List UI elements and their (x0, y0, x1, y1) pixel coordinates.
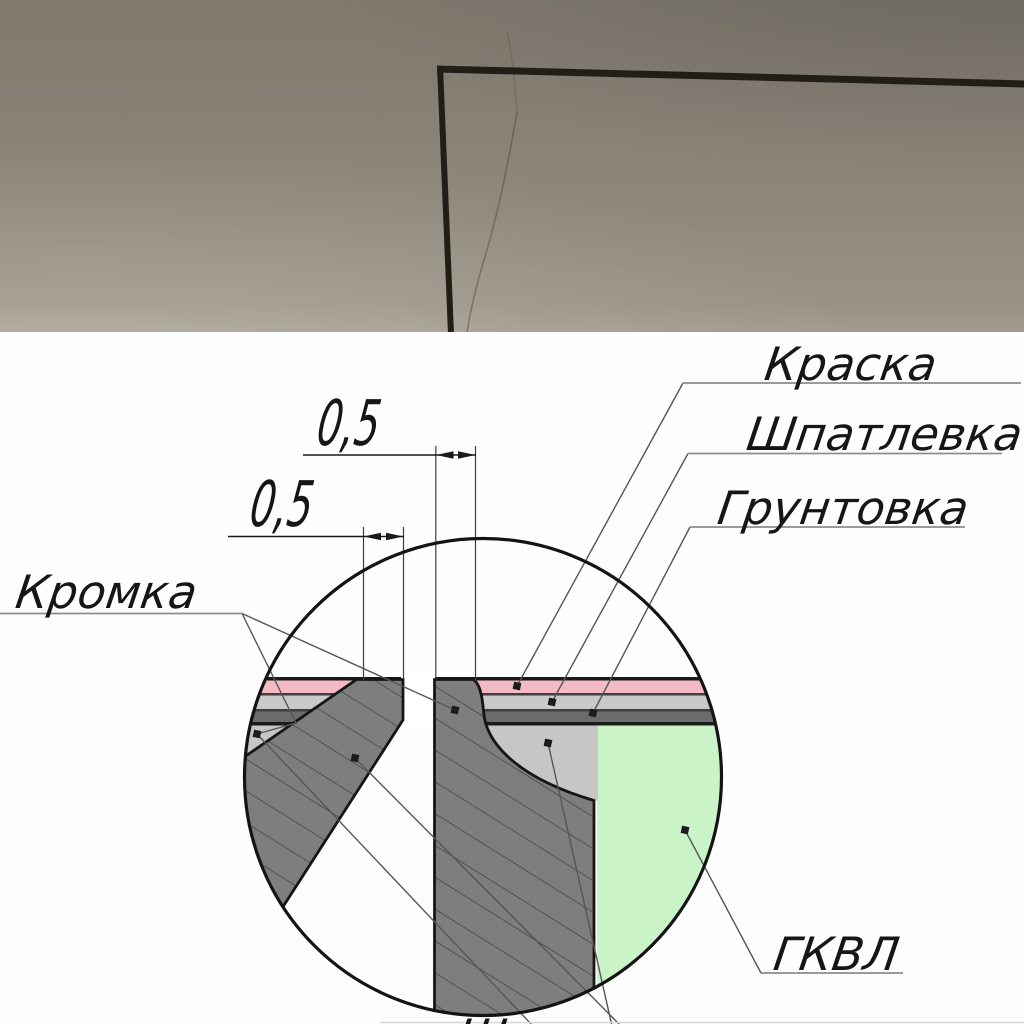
page: Краска Шпатлевка Грунтовка Кромка ГКВЛ 0… (0, 0, 1024, 1024)
paint-layer (240, 681, 732, 694)
putty-label: Шпатлевка (743, 407, 1024, 461)
left-board-section (211, 680, 403, 956)
putty-layer (240, 696, 732, 710)
primer-label: Грунтовка (714, 481, 972, 535)
joint-detail-diagram: Краска Шпатлевка Грунтовка Кромка ГКВЛ 0… (0, 0, 1024, 1024)
dimension-left-edge: 0,5 (246, 469, 318, 542)
bottom-partial-label: Шпатлевка (453, 1009, 736, 1024)
gkvl-label: ГКВЛ (770, 927, 902, 981)
dimension-right-edge: 0,5 (313, 388, 385, 461)
surface-top-line (240, 677, 732, 681)
detail-circle-content (211, 675, 732, 1020)
edge-label: Кромка (12, 565, 200, 619)
dimension-arrows (364, 451, 476, 540)
paint-label: Краска (761, 337, 940, 391)
joint-gap (401, 675, 435, 729)
layer-divider-1 (240, 693, 732, 696)
